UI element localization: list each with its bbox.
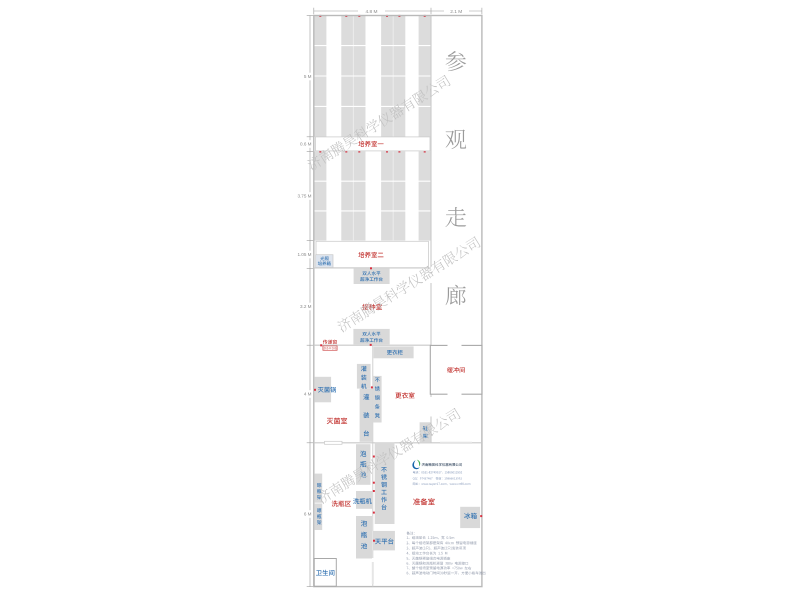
svg-text:3.75 M: 3.75 M	[297, 194, 311, 199]
svg-text:6 M: 6 M	[304, 512, 312, 517]
svg-text:4 M: 4 M	[304, 392, 312, 397]
svg-text:3.2 M: 3.2 M	[300, 304, 312, 309]
svg-text:0.6 M: 0.6 M	[300, 142, 312, 147]
svg-text:2.1 M: 2.1 M	[450, 9, 462, 15]
svg-text:5 M: 5 M	[304, 74, 312, 79]
svg-text:4.8 M: 4.8 M	[366, 9, 378, 15]
svg-text:1.05 M: 1.05 M	[297, 252, 311, 257]
